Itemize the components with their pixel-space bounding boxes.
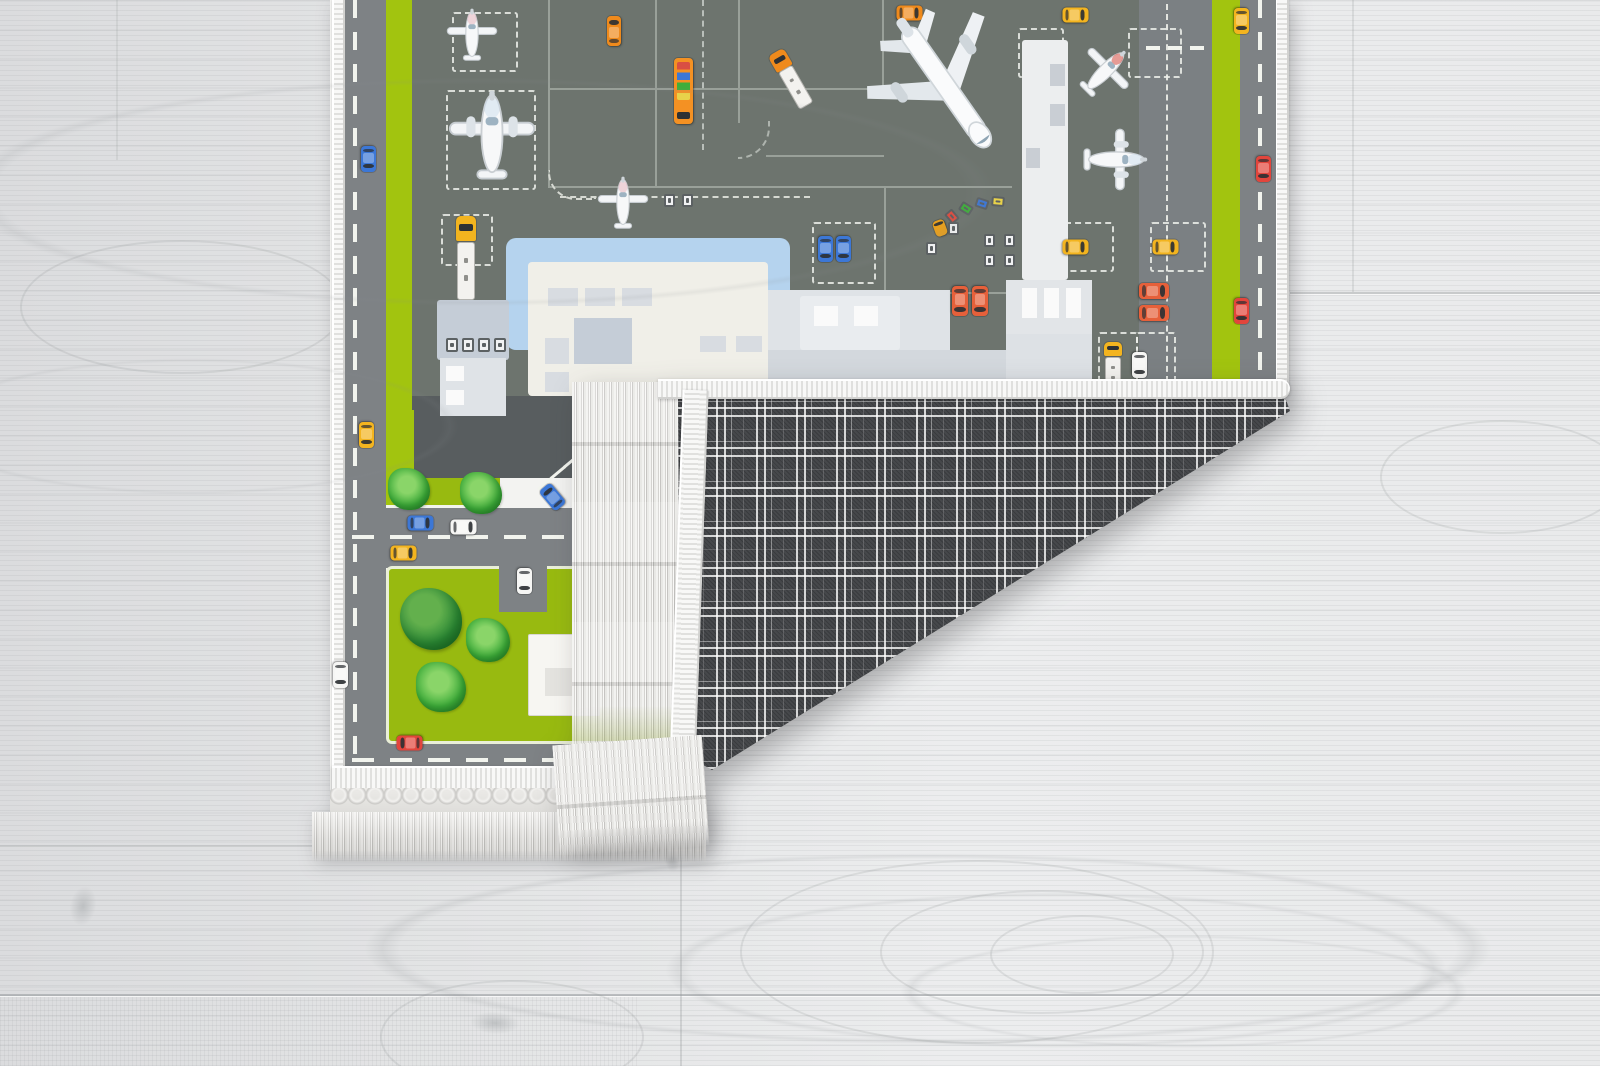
rug-back-plaid bbox=[676, 385, 1292, 777]
flap-layer bbox=[0, 0, 1600, 1066]
fold-top-binding bbox=[658, 379, 1290, 399]
fold-tip-fringe bbox=[552, 735, 709, 857]
product-photo-stage bbox=[0, 0, 1600, 1066]
